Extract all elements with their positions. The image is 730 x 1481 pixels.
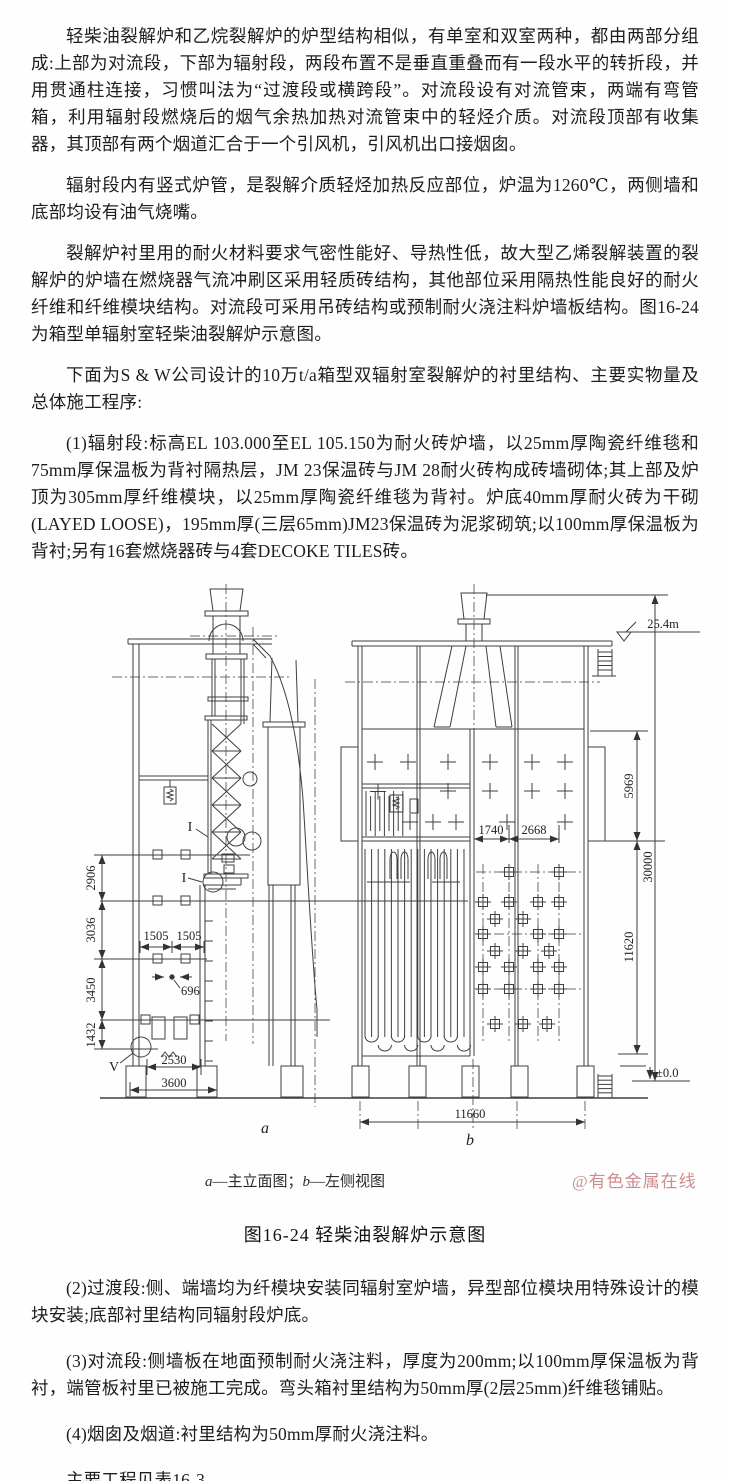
section-label-i1: I xyxy=(188,820,193,835)
dim-label-3600: 3600 xyxy=(162,1076,187,1090)
dim-label-696: 696 xyxy=(181,984,200,998)
dim-label-1505-b: 1505 xyxy=(177,929,202,943)
dim-label-11660: 11660 xyxy=(455,1107,486,1121)
paragraph: 主要工程见表16-3。 xyxy=(31,1467,699,1481)
paragraph: (2)过渡段:侧、端墙均为纤模块安装同辐射室炉墙，异型部位模块用特殊设计的模块安… xyxy=(31,1275,699,1329)
figure-16-24: 2906 3036 3450 1432 1505 1505 696 2530 3… xyxy=(0,579,730,1247)
dim-label-30000: 30000 xyxy=(641,851,655,882)
spring-symbol xyxy=(167,789,173,801)
document-page: 轻柴油裂解炉和乙烷裂解炉的炉型结构相似，有单室和双室两种，都由两部分组成:上部为… xyxy=(0,0,730,1481)
section-label-v: V xyxy=(109,1060,119,1075)
legend-b-key: b xyxy=(303,1174,311,1190)
dim-label-1740: 1740 xyxy=(479,823,504,837)
text-block-bottom: (2)过渡段:侧、端墙均为纤模块安装同辐射室炉墙，异型部位模块用特殊设计的模块安… xyxy=(0,1275,730,1481)
figure-caption: 图16-24 轻柴油裂解炉示意图 xyxy=(0,1221,730,1247)
dim-label-11620: 11620 xyxy=(622,932,636,963)
dim-label-1432: 1432 xyxy=(84,1023,98,1048)
view-label-a: a xyxy=(261,1120,269,1137)
text-block-top: 轻柴油裂解炉和乙烷裂解炉的炉型结构相似，有单室和双室两种，都由两部分组成:上部为… xyxy=(0,0,730,565)
dim-label-2530: 2530 xyxy=(162,1053,187,1067)
elevation-label-top: 25.4m xyxy=(647,617,679,631)
paragraph: (3)对流段:侧墙板在地面预制耐火浇注料，厚度为200mm;以100mm厚保温板… xyxy=(31,1348,699,1402)
paragraph: 下面为S & W公司设计的10万t/a箱型双辐射室裂解炉的衬里结构、主要实物量及… xyxy=(31,362,699,416)
furnace-diagram: 2906 3036 3450 1432 1505 1505 696 2530 3… xyxy=(0,579,730,1149)
legend-a-text: —主立面图； xyxy=(212,1174,302,1190)
watermark: @有色金属在线 xyxy=(572,1167,697,1192)
centerlines xyxy=(112,584,600,1131)
dim-label-1505-a: 1505 xyxy=(144,929,169,943)
paragraph: (1)辐射段:标高EL 103.000至EL 105.150为耐火砖炉墙，以25… xyxy=(31,430,699,565)
view-label-b: b xyxy=(466,1132,474,1149)
paragraph: (4)烟囱及烟道:衬里结构为50mm厚耐火浇注料。 xyxy=(31,1421,699,1448)
paragraph: 辐射段内有竖式炉管，是裂解介质轻烃加热反应部位，炉温为1260℃，两侧墙和底部均… xyxy=(31,172,699,226)
diagram-labels: 2906 3036 3450 1432 1505 1505 696 2530 3… xyxy=(84,617,679,1149)
dim-label-3036: 3036 xyxy=(84,918,98,943)
dim-label-3450: 3450 xyxy=(84,978,98,1003)
paragraph: 裂解炉衬里用的耐火材料要求气密性能好、导热性低，故大型乙烯裂解装置的裂解炉的炉墙… xyxy=(31,240,699,348)
paragraph: 轻柴油裂解炉和乙烷裂解炉的炉型结构相似，有单室和双室两种，都由两部分组成:上部为… xyxy=(31,23,699,158)
view-b-side-view xyxy=(341,593,616,1098)
dim-label-5969: 5969 xyxy=(622,774,636,799)
dim-label-2668: 2668 xyxy=(522,823,547,837)
dim-label-2906: 2906 xyxy=(84,866,98,891)
view-a-front-elevation xyxy=(95,589,468,1097)
section-label-i2: I xyxy=(182,871,187,886)
figure-legend: a—主立面图；b—左侧视图 xyxy=(0,1170,590,1191)
elevation-label-zero: ±0.0 xyxy=(656,1066,679,1080)
legend-b-text: —左侧视图 xyxy=(310,1174,385,1190)
